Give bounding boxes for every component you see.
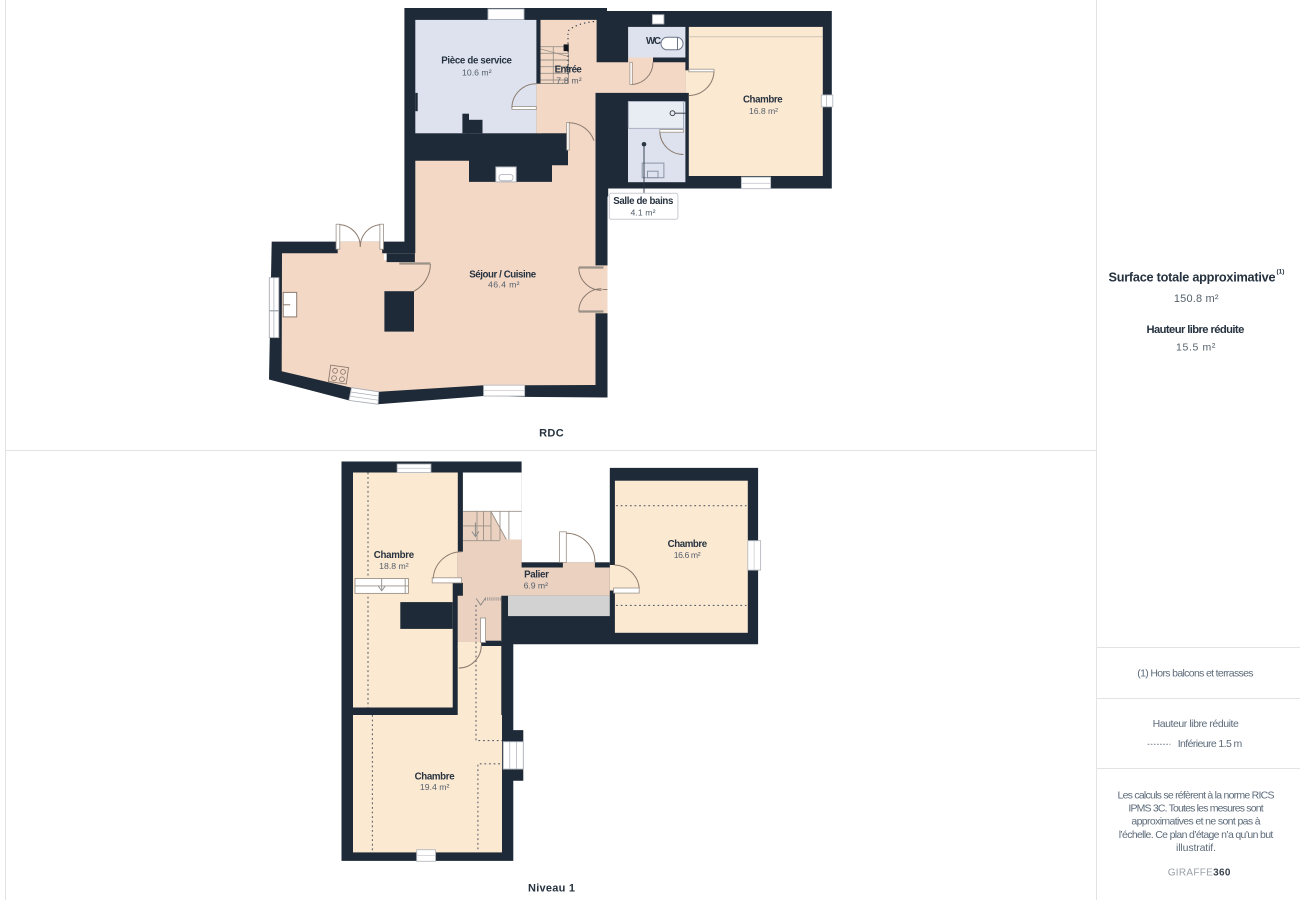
svg-text:(1) Hors balcons et terrasses: (1) Hors balcons et terrasses [1137,668,1253,680]
svg-text:Entrée: Entrée [555,64,583,75]
svg-text:7.8 m²: 7.8 m² [556,75,581,85]
svg-text:Chambre: Chambre [668,539,708,550]
svg-text:IPMS 3C. Toutes les mesures so: IPMS 3C. Toutes les mesures sont [1128,803,1263,815]
svg-text:Chambre: Chambre [415,771,456,782]
svg-text:Chambre: Chambre [374,550,415,561]
svg-text:6.9 m²: 6.9 m² [524,580,548,590]
svg-text:Surface totale approximative: Surface totale approximative [1109,270,1276,284]
svg-text:WC: WC [646,36,661,47]
svg-text:4.1 m²: 4.1 m² [631,208,656,218]
svg-text:19.4 m²: 19.4 m² [420,782,450,792]
svg-text:16.8 m²: 16.8 m² [749,106,778,116]
svg-text:illustratif.: illustratif. [1176,842,1216,854]
svg-text:Palier: Palier [524,569,549,580]
svg-text:18.8 m²: 18.8 m² [379,561,409,571]
svg-text:150.8 m²: 150.8 m² [1174,293,1219,305]
svg-text:GIRAFFE360: GIRAFFE360 [1168,867,1231,878]
svg-text:46.4 m²: 46.4 m² [488,279,520,289]
svg-text:Salle de bains: Salle de bains [613,196,673,207]
svg-text:Inférieure 1.5 m: Inférieure 1.5 m [1178,738,1243,750]
svg-text:Pièce de service: Pièce de service [441,56,512,67]
svg-text:Niveau 1: Niveau 1 [528,883,575,895]
svg-text:l’échelle. Ce plan d’étage n’a: l’échelle. Ce plan d’étage n’a qu’un but [1119,829,1274,841]
svg-text:10.6 m²: 10.6 m² [462,68,492,78]
svg-text:Hauteur libre réduite: Hauteur libre réduite [1147,324,1245,336]
svg-text:Les calculs se réfèrent à la n: Les calculs se réfèrent à la norme RICS [1118,790,1275,802]
svg-text:RDC: RDC [539,428,564,440]
svg-text:15.5 m²: 15.5 m² [1176,342,1216,354]
svg-text:approximatives et ne sont pas: approximatives et ne sont pas à [1131,816,1260,828]
svg-text:Hauteur libre réduite: Hauteur libre réduite [1153,718,1239,730]
svg-text:Chambre: Chambre [743,95,783,106]
svg-text:(1): (1) [1277,269,1285,276]
svg-text:16.6 m²: 16.6 m² [674,550,701,560]
